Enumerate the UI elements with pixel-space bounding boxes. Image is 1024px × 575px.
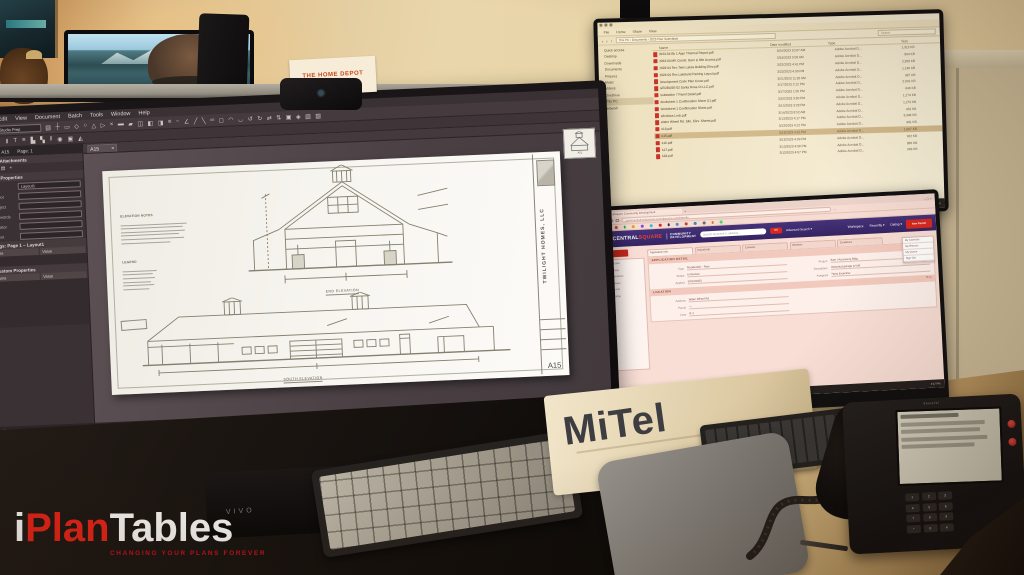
- bookmark-favicon[interactable]: [632, 225, 635, 228]
- user-menu-item[interactable]: Sign Out: [904, 254, 934, 262]
- toolbar-icon[interactable]: ‖: [50, 136, 53, 142]
- toolbar-icon[interactable]: ▣: [67, 135, 73, 142]
- taskbar-clock: 4:37 PM: [931, 382, 941, 386]
- webcam: [280, 78, 362, 110]
- toolbar-icon[interactable]: ↻: [257, 115, 262, 122]
- bookmark-favicon[interactable]: [667, 223, 670, 226]
- mitel-brand: MiTel: [560, 396, 670, 455]
- advanced-search-link[interactable]: Advanced Search ▾: [786, 227, 812, 232]
- toolbar-icon[interactable]: ◈: [296, 113, 301, 120]
- south-elevation-label: SOUTH ELEVATION: [283, 376, 322, 383]
- bookmark-favicon[interactable]: [658, 224, 661, 227]
- toolbar-icon[interactable]: ▙: [30, 137, 35, 144]
- toolbar-icon[interactable]: ◇: [74, 123, 79, 130]
- phone-keypad-key: #: [940, 523, 954, 532]
- window-controls[interactable]: – ▢ ×: [921, 196, 935, 201]
- bookmark-favicon[interactable]: [615, 226, 618, 229]
- phone-keypad-key: 1: [905, 493, 919, 502]
- explorer-file-list: Name Date modified Type Size 2023-04 Bk …: [652, 36, 943, 160]
- pdf-file-icon: [654, 79, 658, 84]
- brand-subtitle: COMMUNITYDEVELOPMENT: [666, 231, 696, 239]
- attachment-tool-icon[interactable]: ▤: [1, 165, 6, 172]
- webcam-lens: [316, 88, 326, 98]
- phone-display: [895, 406, 1004, 486]
- bookmark-favicon[interactable]: [676, 223, 679, 226]
- brand-name: CENTRALSQUARE: [612, 234, 662, 243]
- menu-item[interactable]: Edit: [0, 116, 7, 123]
- toolbar-icon[interactable]: ◉: [57, 135, 63, 142]
- thumbnail-panel[interactable]: A15: [563, 128, 596, 159]
- toolbar-icon[interactable]: ▥: [305, 113, 311, 120]
- bookmark-favicon[interactable]: [623, 226, 626, 229]
- toolbar-icon[interactable]: ═: [210, 117, 215, 124]
- pdf-file-icon: [653, 52, 657, 57]
- back-icon[interactable]: ‹: [602, 38, 603, 43]
- toolbar-icon[interactable]: ▚: [40, 136, 45, 143]
- toolbar-icon[interactable]: T: [13, 138, 17, 144]
- bookmark-favicon[interactable]: [685, 222, 688, 225]
- toolbar-icon[interactable]: ╲: [202, 117, 206, 124]
- phone-keypad-key: 3: [938, 491, 952, 500]
- toolbar-icon[interactable]: ▬: [118, 121, 124, 128]
- phone-keypad-key: 6: [938, 502, 952, 511]
- phone-keypad-key: 0: [923, 523, 937, 532]
- toolbar-icon[interactable]: ▭: [64, 123, 70, 130]
- star-icon[interactable]: ☆: [834, 207, 837, 211]
- header-nav-link[interactable]: Recently ▾: [870, 223, 885, 228]
- toolbar-icon[interactable]: ○: [83, 122, 87, 129]
- toolbar-icon[interactable]: Ⅰ: [0, 138, 1, 145]
- phone-keypad-key: 9: [939, 512, 953, 521]
- menu-item[interactable]: Batch: [68, 113, 82, 121]
- plan-sheet[interactable]: ELEVATION NOTES LEGEND: [102, 151, 569, 395]
- phone-keypad-key: 8: [923, 513, 937, 522]
- file-explorer-monitor: FileHomeShareView ‹ › ↑ This PC › Docume…: [593, 9, 949, 221]
- iplantables-watermark: iPlanTables CHANGING YOUR PLANS FOREVER: [14, 508, 266, 557]
- phone-keypad-key: 5: [922, 502, 936, 511]
- toolbar-icon[interactable]: ◭: [78, 135, 83, 142]
- permit-search-input[interactable]: Search by permit #, address…: [700, 228, 766, 238]
- map-link[interactable]: Map: [926, 276, 932, 282]
- pdf-file-icon: [655, 127, 659, 132]
- toolbar-icon[interactable]: ◻: [219, 116, 224, 123]
- bookmark-favicon[interactable]: [650, 224, 653, 227]
- toolbar-icon[interactable]: ▰: [128, 120, 133, 127]
- photo-scene: FileHomeShareView ‹ › ↑ This PC › Docume…: [0, 0, 1024, 575]
- header-nav-link[interactable]: Dialog ▾: [890, 222, 902, 227]
- explorer-ribbon-tab[interactable]: View: [649, 29, 657, 35]
- bluebeam-screen: FileEditViewDocumentBatchToolsWindowHelp…: [0, 89, 613, 448]
- explorer-search-input[interactable]: Search: [878, 29, 936, 36]
- phone-keypad-key: 7: [906, 514, 920, 523]
- pdf-file-icon: [654, 93, 658, 98]
- webapp-content: ▸ All Tasks▸ Permits▸ Inspections▸ Revie…: [601, 230, 944, 386]
- toolbar-icon[interactable]: ⇅: [276, 114, 281, 121]
- phone-keypad-key: 2: [921, 492, 935, 501]
- explorer-ribbon-tab[interactable]: Home: [616, 30, 625, 36]
- toolbar-icon[interactable]: ⇄: [267, 114, 272, 121]
- new-tab-icon[interactable]: +: [684, 209, 686, 213]
- explorer-ribbon-tab[interactable]: Share: [633, 29, 642, 35]
- phone-red-button: [1007, 420, 1015, 428]
- drawing-canvas[interactable]: A15× ELEVATION NOTES LEGEND: [83, 121, 612, 422]
- tab-close-icon[interactable]: ×: [111, 145, 114, 152]
- explorer-nav-item[interactable]: Network: [600, 104, 654, 112]
- explorer-ribbon-tab[interactable]: File: [604, 30, 610, 36]
- elevation-notes: ELEVATION NOTES LEGEND: [120, 201, 194, 292]
- architect-logo: [536, 159, 555, 186]
- properties-panel: Item: A15Page: 1 File Attachments ▣▤+ Fi…: [0, 144, 95, 427]
- pdf-file-icon: [655, 113, 659, 118]
- pdf-file-icon: [655, 134, 659, 139]
- pdf-file-icon: [654, 86, 658, 91]
- toolbar-icon[interactable]: ▣: [286, 113, 292, 120]
- pdf-file-icon: [656, 147, 660, 152]
- up-icon[interactable]: ↑: [610, 38, 612, 43]
- end-elevation-drawing: [220, 159, 469, 292]
- sheet-number: A15: [542, 360, 567, 370]
- phone-keypad-key: *: [907, 524, 921, 533]
- bookmark-favicon[interactable]: [720, 221, 723, 224]
- toolbar-icon[interactable]: ≡: [22, 138, 26, 144]
- pdf-file-icon: [655, 100, 659, 105]
- new-permit-button[interactable]: New Permit: [906, 218, 932, 228]
- menu-item[interactable]: Document: [35, 114, 60, 122]
- pdf-file-icon: [654, 66, 658, 71]
- toolbar-icon[interactable]: ▤: [45, 124, 51, 131]
- menu-item[interactable]: View: [15, 115, 27, 123]
- toolbar-icon[interactable]: ╱: [194, 118, 198, 125]
- pdf-file-icon: [655, 120, 659, 125]
- toolbar-icon[interactable]: Ⅱ: [5, 138, 8, 145]
- toolbar-icon[interactable]: ◨: [158, 119, 164, 126]
- toolbar-icon[interactable]: ↺: [248, 115, 253, 122]
- document-tab[interactable]: A15×: [87, 144, 117, 153]
- bookmark-favicon[interactable]: [641, 225, 644, 228]
- bookmark-favicon[interactable]: [711, 221, 714, 224]
- attachment-tool-icon[interactable]: +: [9, 165, 12, 172]
- watermark-tagline: CHANGING YOUR PLANS FOREVER: [110, 550, 266, 557]
- toolbar-icon[interactable]: ◧: [147, 119, 153, 126]
- toolbar-icon[interactable]: ◡: [238, 116, 244, 123]
- toolbar-icon[interactable]: ×: [110, 121, 114, 128]
- explorer-monitor-arm: [620, 0, 650, 18]
- file-explorer-screen: FileHomeShareView ‹ › ↑ This PC › Docume…: [597, 13, 944, 216]
- speaker: [197, 13, 250, 95]
- phone-red-button: [1008, 438, 1016, 446]
- menu-item[interactable]: Tools: [90, 112, 103, 120]
- search-go-button[interactable]: GO: [770, 227, 782, 234]
- phone-keypad-key: 4: [906, 503, 920, 512]
- bookmark-favicon[interactable]: [702, 221, 705, 224]
- bookmark-favicon[interactable]: [694, 222, 697, 225]
- menu-item[interactable]: Help: [138, 110, 150, 117]
- toolbar-icon[interactable]: ▷: [101, 122, 106, 129]
- pdf-file-icon: [655, 107, 659, 112]
- profile-dropdown[interactable]: Bluebeam Studio Prep: [0, 124, 41, 135]
- south-elevation-drawing: [136, 285, 519, 381]
- toolbar-icon[interactable]: ▨: [315, 112, 321, 119]
- toolbar-icon[interactable]: ◫: [137, 120, 143, 127]
- toolbar-icon[interactable]: ┼: [55, 124, 60, 131]
- pdf-file-icon: [656, 154, 660, 159]
- pdf-file-icon: [654, 73, 658, 78]
- company-name: TWILIGHT HOMES, LLC: [539, 208, 548, 284]
- toolbar-icon[interactable]: ≡: [168, 119, 172, 126]
- pdf-file-icon: [653, 59, 657, 64]
- toolbar-icon[interactable]: ~: [176, 118, 180, 125]
- toolbar-icon[interactable]: ∠: [184, 118, 190, 125]
- menu-item[interactable]: Window: [111, 111, 131, 119]
- toolbar-icon[interactable]: △: [91, 122, 96, 129]
- toolbar-icon[interactable]: ◠: [228, 116, 234, 123]
- header-nav-link[interactable]: Workspace: [848, 224, 864, 229]
- pdf-file-icon: [656, 141, 660, 146]
- reload-icon[interactable]: [615, 219, 619, 223]
- forward-icon[interactable]: ›: [606, 38, 607, 43]
